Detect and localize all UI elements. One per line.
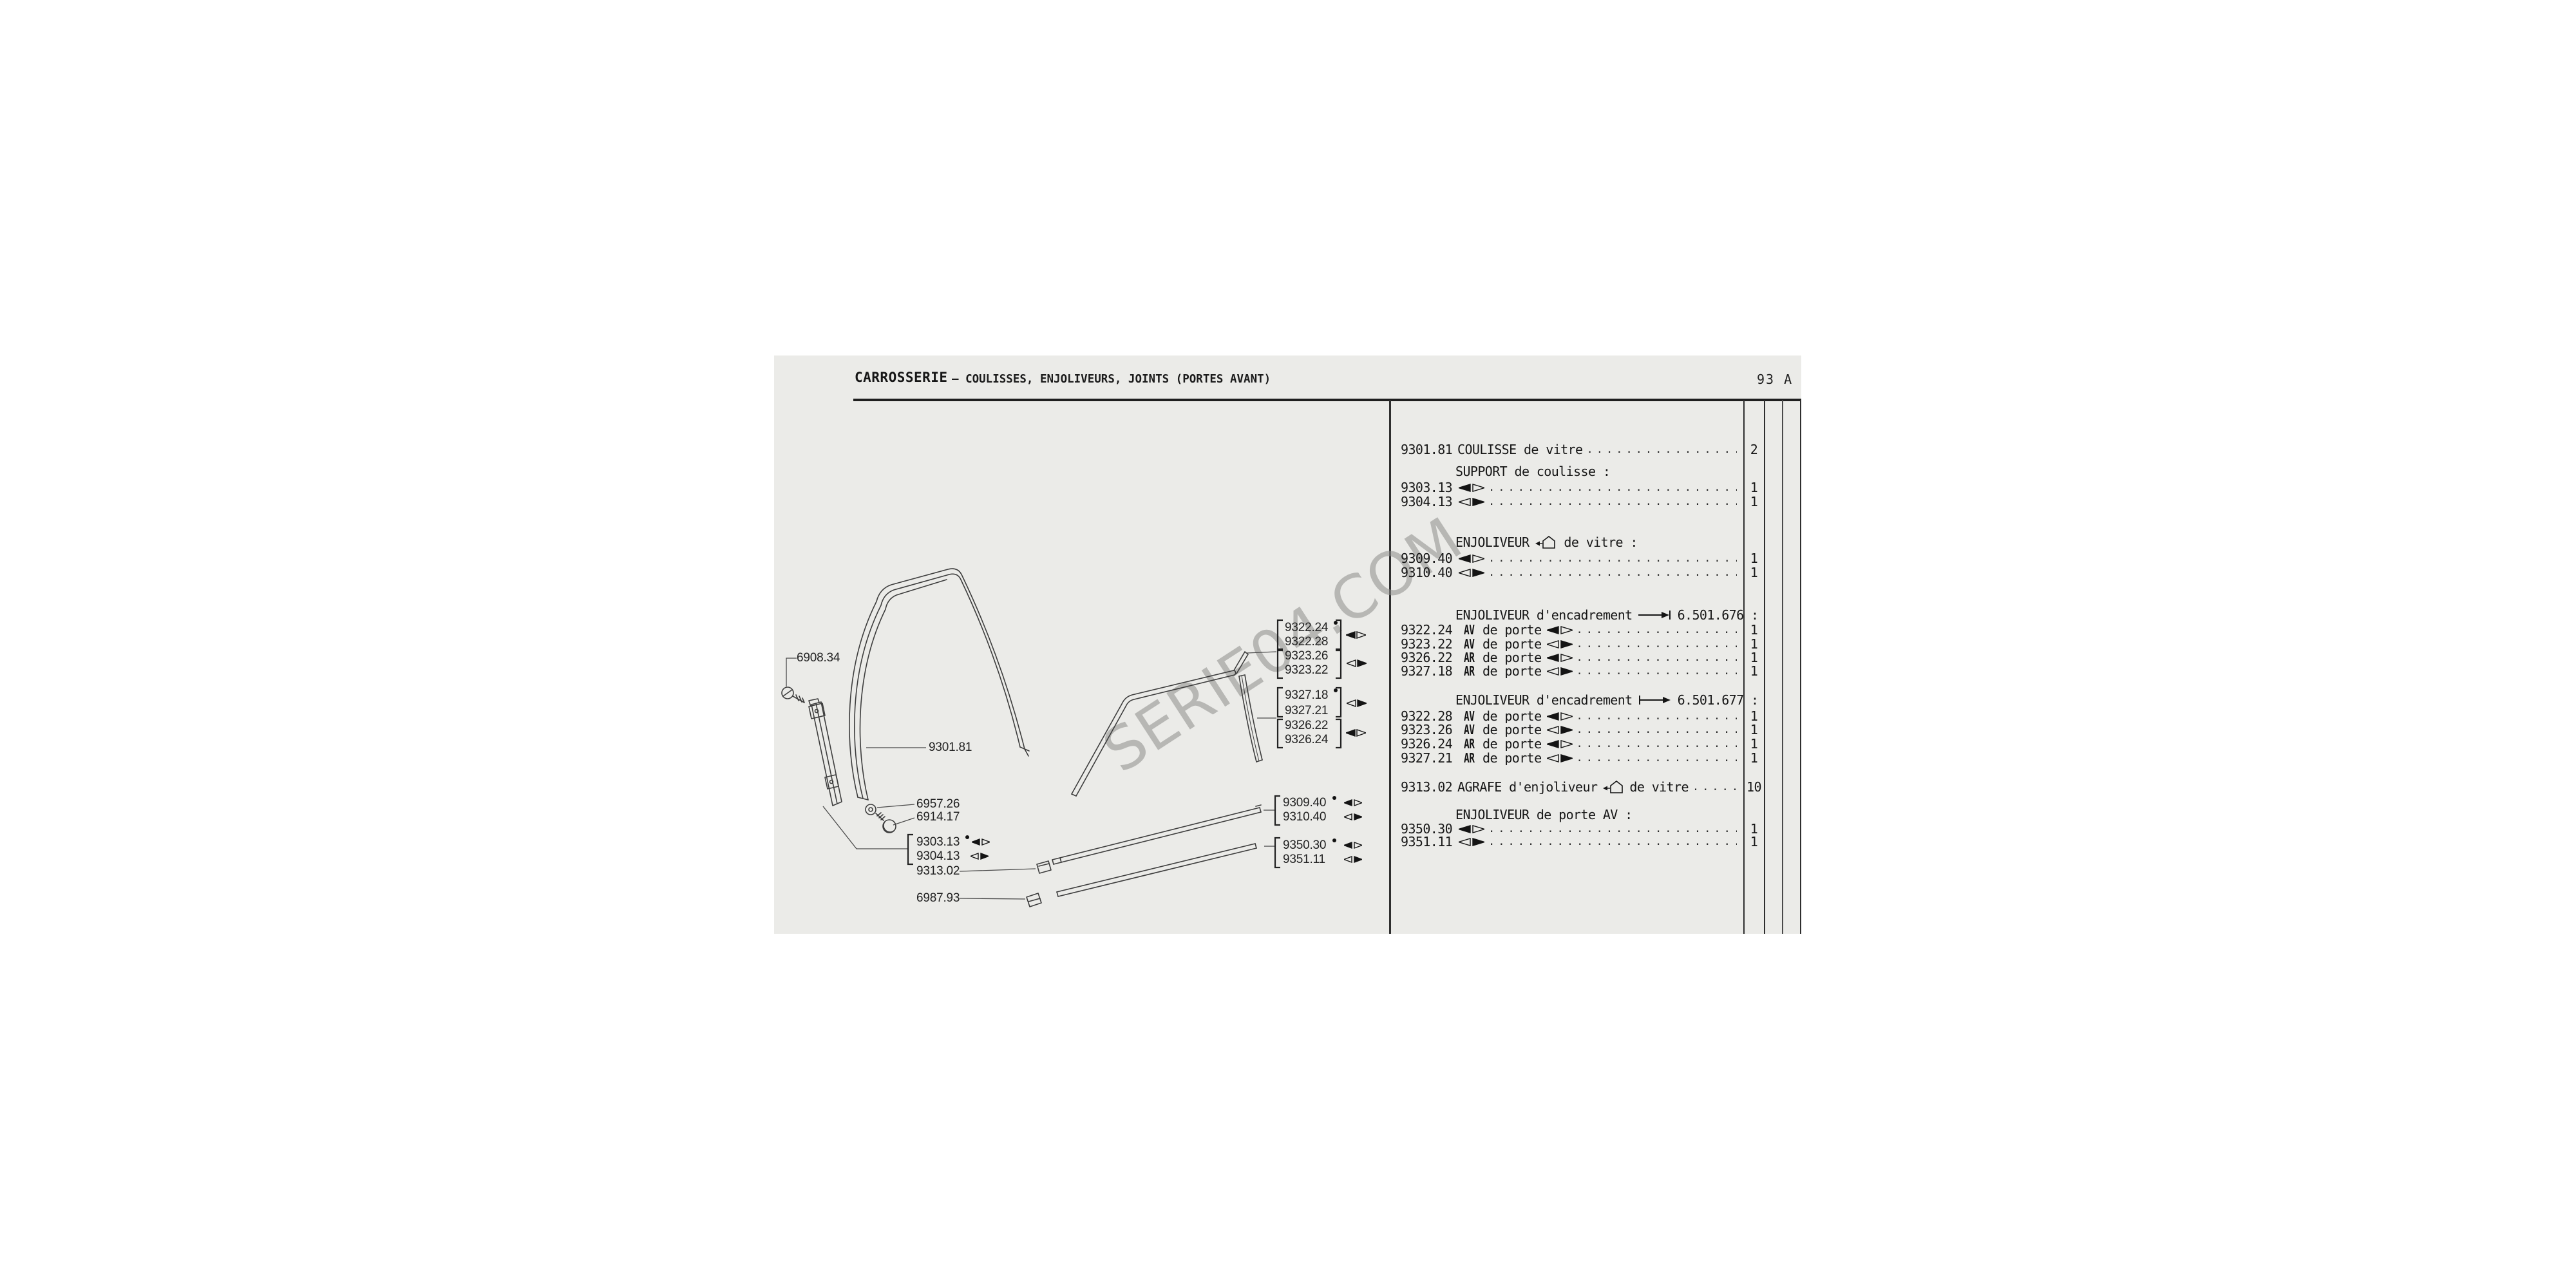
window-frame-profile-icon: [1602, 780, 1625, 794]
parts-row: 9323.22AVde porte.......................…: [1401, 637, 1737, 651]
front-rear-abbrev: AR: [1464, 664, 1476, 678]
leader-lines: [786, 652, 1276, 899]
parts-row: 9350.30.................................…: [1401, 822, 1737, 836]
section-header-text: SUPPORT de coulisse :: [1455, 464, 1610, 478]
callout-part-number: 9303.13: [916, 835, 960, 849]
parts-row: 9301.81COULISSE de vitre................…: [1401, 442, 1737, 457]
part-quantity: 1: [1743, 623, 1765, 637]
dotted-leader: ........................................…: [1488, 822, 1737, 836]
front-rear-abbrev: AV: [1464, 623, 1476, 637]
diagram-callout: 9326.22: [1285, 719, 1328, 733]
callout-part-number: 6914.17: [916, 810, 960, 824]
right-filled-double-arrow-icon: [1347, 699, 1367, 707]
dotted-leader: ........................................…: [1692, 780, 1737, 794]
part-quantity: 1: [1743, 664, 1765, 678]
part-reference: 9327.21: [1401, 751, 1455, 765]
left-filled-double-arrow-icon: [1547, 712, 1573, 721]
vitre-trim-strip-drawing: [1052, 805, 1261, 864]
dotted-leader: ........................................…: [1577, 751, 1737, 765]
parts-row: 9351.11.................................…: [1401, 835, 1737, 849]
diagram-callout: 6987.93: [916, 891, 960, 905]
right-filled-double-arrow-icon: [971, 853, 989, 860]
diagram-callout: 9350.30: [1283, 838, 1326, 853]
right-filled-double-arrow-icon: [1459, 569, 1484, 577]
parts-row: 9309.40.................................…: [1401, 551, 1737, 565]
parts-row: 9304.13.................................…: [1401, 495, 1737, 509]
callout-part-number: 6908.34: [797, 651, 840, 665]
dotted-leader: ........................................…: [1488, 480, 1737, 495]
callout-part-number: 6957.26: [916, 797, 960, 811]
part-reference: 9326.22: [1401, 650, 1455, 665]
parts-row: 9303.13.................................…: [1401, 480, 1737, 495]
callout-part-number: 9326.24: [1285, 733, 1328, 747]
parts-row: 9323.26AVde porte.......................…: [1401, 723, 1737, 737]
callout-part-number: 9326.22: [1285, 719, 1328, 733]
parts-row: 9322.28AVde porte.......................…: [1401, 709, 1737, 723]
part-description: de porte: [1482, 623, 1542, 637]
left-filled-double-arrow-icon: [1459, 484, 1484, 492]
diagram-callout: 6908.34: [797, 651, 840, 665]
part-reference: 9301.81: [1401, 442, 1455, 457]
callout-part-number: 9351.11: [1283, 853, 1325, 867]
part-quantity: 1: [1743, 480, 1765, 495]
dotted-leader: ........................................…: [1488, 565, 1737, 580]
part-description: de vitre: [1629, 780, 1689, 794]
section-header-text: ENJOLIVEUR: [1455, 535, 1529, 549]
parts-row: 9313.02AGRAFE d'enjoliveurde vitre......…: [1401, 780, 1737, 794]
dotted-leader: ........................................…: [1488, 835, 1737, 849]
left-filled-double-arrow-icon: [1459, 825, 1484, 833]
reference-star-dots: [965, 621, 1338, 842]
left-filled-double-arrow-icon: [972, 838, 990, 846]
left-filled-double-arrow-icon: [1547, 740, 1573, 748]
callout-part-number: 9301.81: [929, 741, 972, 755]
front-rear-abbrev: AV: [1464, 709, 1476, 723]
front-rear-abbrev: AR: [1464, 751, 1476, 765]
part-quantity: 10: [1743, 780, 1765, 794]
part-quantity: 1: [1743, 637, 1765, 651]
dotted-leader: ........................................…: [1577, 650, 1737, 665]
diagram-callout: 9309.40: [1283, 796, 1326, 810]
part-quantity: 1: [1743, 495, 1765, 509]
dotted-leader: ........................................…: [1488, 551, 1737, 565]
callout-part-number: 9309.40: [1283, 796, 1326, 810]
right-filled-double-arrow-icon: [1344, 813, 1362, 820]
right-filled-double-arrow-icon: [1347, 659, 1367, 667]
right-filled-double-arrow-icon: [1344, 856, 1362, 863]
diagram-callout: 9301.81: [929, 741, 972, 755]
callout-part-number: 9350.30: [1283, 838, 1326, 853]
part-quantity: 1: [1743, 737, 1765, 751]
part-quantity: 1: [1743, 723, 1765, 737]
dotted-leader: ........................................…: [1577, 737, 1737, 751]
diagram-callout: 9351.11: [1283, 853, 1325, 867]
part-quantity: 1: [1743, 551, 1765, 565]
screw-6914-drawing: [876, 813, 896, 833]
diagram-callout: 9327.21: [1285, 704, 1328, 718]
dotted-leader: ........................................…: [1587, 442, 1738, 457]
section-header-text: de vitre :: [1564, 535, 1637, 549]
section-header-text: 6.501.677 :: [1678, 693, 1759, 707]
right-filled-double-arrow-icon: [1547, 640, 1573, 649]
left-filled-double-arrow-icon: [1547, 654, 1573, 662]
dotted-leader: ........................................…: [1577, 709, 1737, 723]
endcap-6987-drawing: [1027, 893, 1041, 907]
diagram-callout: 9313.02: [916, 864, 960, 878]
part-quantity: 1: [1743, 751, 1765, 765]
callout-part-number: 9327.18: [1285, 688, 1328, 703]
clip-9313-drawing: [1037, 861, 1051, 873]
part-quantity: 1: [1743, 709, 1765, 723]
left-filled-double-arrow-icon: [1344, 842, 1362, 849]
part-reference: 9322.24: [1401, 623, 1455, 637]
part-description: de porte: [1482, 650, 1542, 665]
part-reference: 9323.22: [1401, 637, 1455, 651]
diagram-callout: 9322.28: [1285, 635, 1328, 649]
support-strip-drawing: [809, 699, 842, 806]
right-filled-double-arrow-icon: [1547, 726, 1573, 734]
diagram-callout: 9304.13: [916, 849, 960, 864]
callout-part-number: 9323.26: [1285, 649, 1328, 663]
part-reference: 9304.13: [1401, 495, 1455, 509]
diagram-callout: 6914.17: [916, 810, 960, 824]
right-filled-double-arrow-icon: [1547, 667, 1573, 676]
part-description: de porte: [1482, 751, 1542, 765]
right-filled-double-arrow-icon: [1459, 498, 1484, 506]
parts-row: 9327.18ARde porte.......................…: [1401, 664, 1737, 678]
diagram-callout: 9322.24: [1285, 621, 1328, 635]
diagram-callout: 9303.13: [916, 835, 960, 849]
callout-part-number: 9322.24: [1285, 621, 1328, 635]
dotted-leader: ........................................…: [1577, 637, 1737, 651]
arrow-to-bar-icon: [1638, 610, 1672, 620]
part-description: COULISSE de vitre: [1457, 442, 1583, 457]
part-quantity: 2: [1743, 442, 1765, 457]
washer-6957-drawing: [866, 804, 876, 815]
callout-part-number: 9310.40: [1283, 810, 1326, 824]
part-description: de porte: [1482, 709, 1542, 723]
part-reference: 9323.26: [1401, 723, 1455, 737]
part-description: de porte: [1482, 637, 1542, 651]
part-description: de porte: [1482, 723, 1542, 737]
part-reference: 9351.11: [1401, 835, 1455, 849]
parts-row: 9310.40.................................…: [1401, 565, 1737, 580]
diagram-callout: 9327.18: [1285, 688, 1328, 703]
left-filled-double-arrow-icon: [1346, 729, 1366, 737]
part-description: de porte: [1482, 737, 1542, 751]
front-rear-abbrev: AV: [1464, 637, 1476, 651]
section-header: SUPPORT de coulisse :: [1455, 464, 1610, 478]
part-quantity: 1: [1743, 835, 1765, 849]
left-filled-double-arrow-icon: [1547, 626, 1573, 634]
parts-row: 9327.21ARde porte.......................…: [1401, 751, 1737, 765]
screw-6908-drawing: [782, 687, 804, 703]
window-frame-profile-icon: [1535, 535, 1558, 550]
part-reference: 9303.13: [1401, 480, 1455, 495]
part-reference: 9350.30: [1401, 822, 1455, 836]
section-header: ENJOLIVEURde vitre :: [1455, 535, 1638, 549]
section-header-text: 6.501.676 :: [1678, 608, 1759, 622]
section-header-text: ENJOLIVEUR d'encadrement: [1455, 693, 1633, 707]
part-reference: 9313.02: [1401, 780, 1455, 794]
callout-part-number: 9322.28: [1285, 635, 1328, 649]
section-header-text: ENJOLIVEUR d'encadrement: [1455, 608, 1633, 622]
diagram-callout: 9326.24: [1285, 733, 1328, 747]
callout-part-number: 9323.22: [1285, 663, 1328, 677]
front-rear-abbrev: AV: [1464, 723, 1476, 737]
part-description: AGRAFE d'enjoliveur: [1457, 780, 1597, 794]
coulisse-frame-drawing: [849, 569, 1029, 800]
left-filled-double-arrow-icon: [1346, 631, 1366, 639]
part-reference: 9310.40: [1401, 565, 1455, 580]
dotted-leader: ........................................…: [1488, 495, 1737, 509]
part-reference: 9327.18: [1401, 664, 1455, 678]
callout-part-number: 9327.21: [1285, 704, 1328, 718]
part-description: de porte: [1482, 664, 1542, 678]
callout-part-number: 9304.13: [916, 849, 960, 864]
right-filled-double-arrow-icon: [1459, 838, 1484, 846]
parts-row: 9322.24AVde porte.......................…: [1401, 623, 1737, 637]
callout-brackets: [908, 620, 1341, 867]
callout-part-number: 6987.93: [916, 891, 960, 905]
parts-row: 9326.22ARde porte.......................…: [1401, 650, 1737, 665]
parts-row: 9326.24ARde porte.......................…: [1401, 737, 1737, 751]
part-quantity: 1: [1743, 650, 1765, 665]
part-reference: 9309.40: [1401, 551, 1455, 565]
diagram-callout: 9323.26: [1285, 649, 1328, 663]
front-rear-abbrev: AR: [1464, 650, 1476, 665]
part-quantity: 1: [1743, 565, 1765, 580]
callout-part-number: 9313.02: [916, 864, 960, 878]
diagram-callout: 9310.40: [1283, 810, 1326, 824]
left-filled-double-arrow-icon: [1344, 799, 1362, 806]
section-header-text: ENJOLIVEUR de porte AV :: [1455, 808, 1633, 822]
encadrement-trim-long-drawing: [1072, 652, 1248, 796]
diagram-callout: 6957.26: [916, 797, 960, 811]
section-header: ENJOLIVEUR d'encadrement6.501.676 :: [1455, 608, 1758, 622]
dotted-leader: ........................................…: [1577, 723, 1737, 737]
diagram-callout: 9323.22: [1285, 663, 1328, 677]
dotted-leader: ........................................…: [1577, 623, 1737, 637]
section-header: ENJOLIVEUR d'encadrement6.501.677 :: [1455, 693, 1758, 707]
right-filled-double-arrow-icon: [1547, 754, 1573, 762]
section-header: ENJOLIVEUR de porte AV :: [1455, 808, 1633, 822]
left-filled-double-arrow-icon: [1459, 554, 1484, 563]
part-reference: 9326.24: [1401, 737, 1455, 751]
front-rear-abbrev: AR: [1464, 737, 1476, 751]
arrow-from-bar-icon: [1638, 695, 1672, 705]
part-reference: 9322.28: [1401, 709, 1455, 723]
dotted-leader: ........................................…: [1577, 664, 1737, 678]
